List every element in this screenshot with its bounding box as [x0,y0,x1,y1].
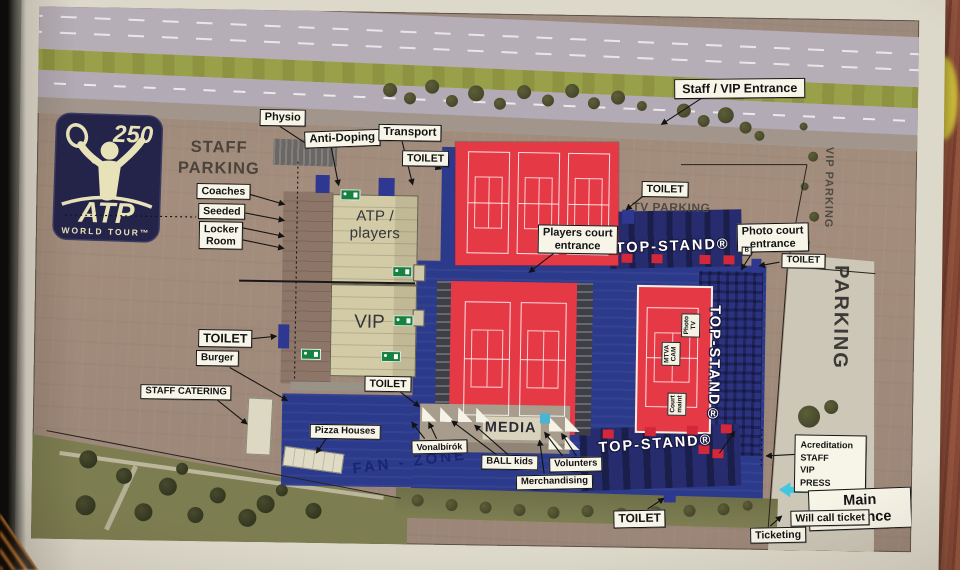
will-call-label: Will call ticket [790,509,870,527]
toilet-right-label: TOILET [781,253,825,269]
venue-map-photo: STAFF PARKING TV PARKING VIP PARKING PAR… [0,0,960,570]
staff-vip-entrance-label: Staff / VIP Entrance [674,78,805,100]
toilet-bottom-label: TOILET [613,509,666,528]
locker-room-label: Locker Room [199,221,244,250]
toilet-mid-label: TOILET [364,376,411,393]
stand-b-label: B [742,247,752,256]
ticketing-label: Ticketing [750,527,806,544]
seeded-label: Seeded [198,203,246,220]
toilet-top-label: TOILET [402,150,449,167]
anti-doping-label: Anti-Doping [304,129,380,149]
merchandising-label: Merchandising [516,474,593,490]
venue-map-print: STAFF PARKING TV PARKING VIP PARKING PAR… [31,6,919,552]
staff-catering-label: STAFF CATERING [140,384,232,400]
transport-label: Transport [378,124,441,142]
ball-kids-label: BALL kids [481,454,538,470]
players-court-entrance-label: Players court entrance [538,224,618,255]
physio-label: Physio [260,109,306,126]
toilet-court-label: TOILET [641,181,688,198]
coaches-label: Coaches [196,183,250,200]
vonalbirok-label: Vonalbírók [411,439,467,454]
toilet-left-label: TOILET [198,329,253,348]
burger-label: Burger [196,350,239,366]
volunters-label: Volunters [549,456,602,472]
pizza-houses-label: Pizza Houses [310,424,381,440]
accreditation-label: Acreditation STAFF VIP PRESS [794,434,866,493]
table-edge-left [0,0,26,570]
